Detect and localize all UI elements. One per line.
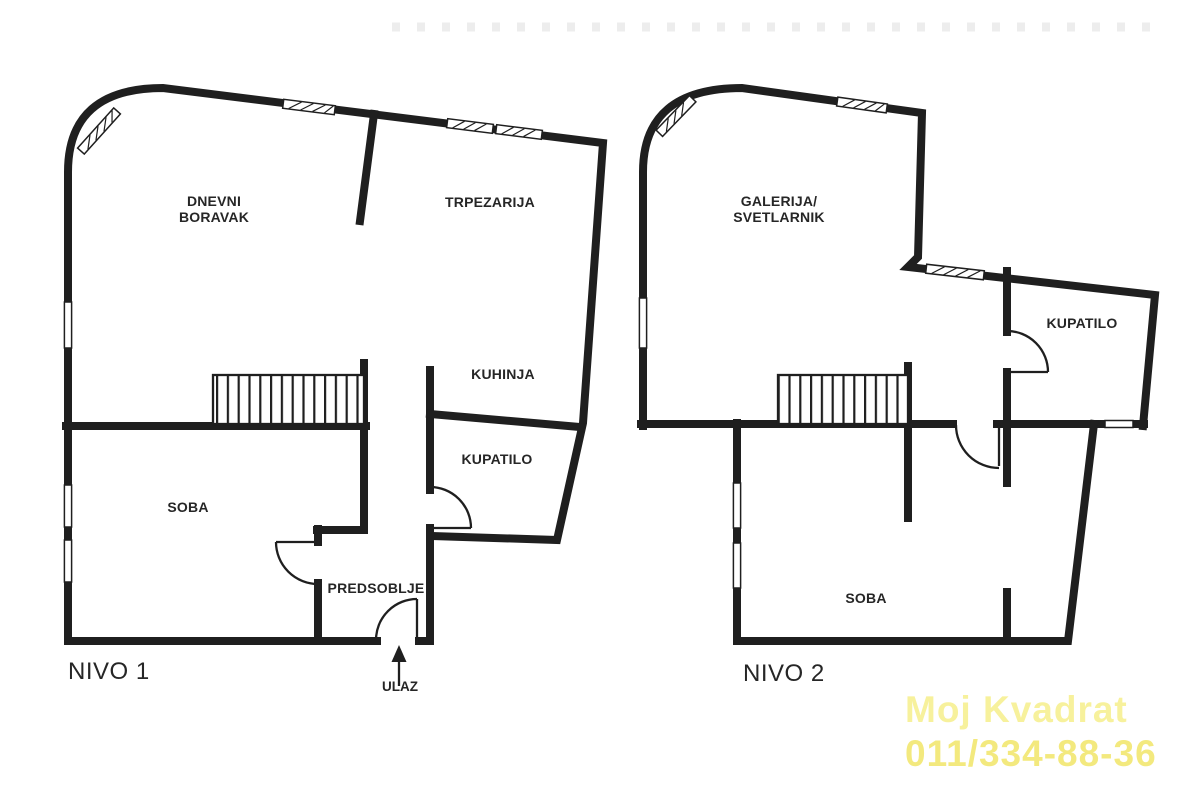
room-label-kuhinja: KUHINJA (471, 366, 535, 382)
nivo2-window-left (639, 298, 646, 348)
room-label-trpezarija: TRPEZARIJA (445, 194, 535, 210)
nivo1-room-divider (360, 114, 374, 221)
level-label-nivo1: NIVO 1 (68, 658, 150, 685)
nivo1-window-left-2 (64, 485, 71, 527)
nivo2-plan (639, 88, 1155, 641)
nivo1-window-left-1 (64, 302, 71, 348)
nivo2-soba-walls (737, 423, 1094, 641)
nivo1-kupatilo-door-arc (430, 487, 471, 528)
nivo1-window-left-3 (64, 540, 71, 582)
nivo1-entry-door-arc (376, 599, 417, 640)
nivo2-kupatilo-door-arc (1007, 331, 1048, 372)
nivo2-window-kupatilo-bottom (1105, 421, 1133, 428)
watermark-line1: Moj Kvadrat (905, 689, 1128, 730)
room-label-soba-nivo2: SOBA (845, 590, 886, 606)
room-label-dnevni-boravak-line1: DNEVNI (187, 193, 241, 209)
nivo2-window-top (837, 97, 888, 113)
nivo1-plan (64, 88, 603, 686)
floorplan-canvas: DNEVNI BORAVAK TRPEZARIJA KUHINJA KUPATI… (0, 0, 1200, 799)
room-label-kupatilo-nivo2: KUPATILO (1046, 315, 1117, 331)
nivo2-stairs (778, 375, 908, 424)
room-label-dnevni-boravak-line2: BORAVAK (179, 209, 249, 225)
room-label-predsoblje: PREDSOBLJE (328, 580, 425, 596)
nivo1-outer-wall (68, 88, 603, 641)
room-label-kupatilo-nivo1: KUPATILO (461, 451, 532, 467)
nivo2-window-kupatilo-top (926, 264, 985, 280)
level-label-nivo2: NIVO 2 (743, 660, 825, 687)
room-label-galerija-line1: GALERIJA/ (741, 193, 817, 209)
entrance-label: ULAZ (382, 679, 418, 694)
nivo1-kuhinja-kupatilo-divider (430, 414, 580, 427)
nivo1-soba-door-arc (276, 542, 318, 584)
nivo2-soba-door-arc (956, 425, 999, 468)
floorplan-drawing: DNEVNI BORAVAK TRPEZARIJA KUHINJA KUPATI… (0, 0, 1200, 799)
watermark-line2: 011/334-88-36 (905, 733, 1157, 774)
nivo1-stairs (213, 375, 364, 424)
room-label-galerija-line2: SVETLARNIK (733, 209, 824, 225)
nivo1-window-top-3 (496, 125, 543, 140)
nivo2-window-soba-2 (733, 543, 740, 588)
room-label-soba-nivo1: SOBA (167, 499, 208, 515)
nivo2-window-soba-1 (733, 483, 740, 528)
nivo1-window-top-1 (283, 99, 336, 114)
nivo1-window-top-2 (447, 119, 494, 134)
